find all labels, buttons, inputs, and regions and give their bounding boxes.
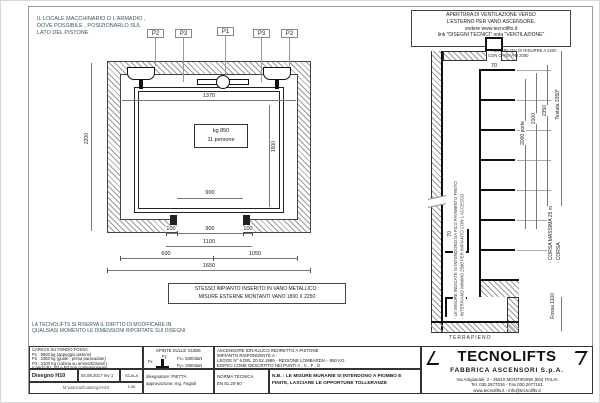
logo-subtitle: FABBRICA ASCENSORI S.p.A. bbox=[422, 367, 592, 375]
ground-floor-slab bbox=[479, 279, 519, 297]
load-point-p2-left: P2 bbox=[147, 29, 164, 38]
top-slab-left bbox=[443, 51, 487, 61]
cell-norma: NORMA TECNICA EN 81.20-50 bbox=[214, 369, 269, 394]
cell-date-rev: 04.09.2017 rev 1 bbox=[78, 369, 120, 382]
norma-text: NORMA TECNICA EN 81.20-50 bbox=[215, 370, 268, 388]
floor-slab bbox=[479, 159, 515, 189]
door-jamb-left bbox=[170, 215, 177, 225]
floor-slab bbox=[479, 189, 515, 219]
disegno-label: Disegno H10 bbox=[30, 370, 77, 382]
dim-2350: 2350 bbox=[542, 105, 548, 116]
leader-p1 bbox=[225, 36, 226, 75]
tick bbox=[107, 268, 108, 273]
dim-900-clear: 900 bbox=[204, 226, 215, 232]
spinte-title: SPINTE SULLE GUIDE bbox=[144, 347, 213, 353]
leader-p2-right bbox=[289, 38, 290, 66]
logo-web: www.tecnolifts.it - info@tecnolifts.it bbox=[422, 388, 592, 394]
cell-carichi: CARICHI SU FONDO FOSSA : P1 : 6900 kg (a… bbox=[29, 346, 143, 369]
tick bbox=[177, 231, 178, 236]
load-point-p2-right: P2 bbox=[281, 29, 298, 38]
dim-corsa: - CORSA MASSIMA 25 m - CORSA bbox=[547, 206, 563, 263]
dim-row4-line bbox=[107, 270, 311, 271]
vent-duct bbox=[485, 37, 503, 51]
dim-1500: 1500 bbox=[271, 141, 277, 152]
drafter-text: disegnatore: PIETTA approvazione: Ing. F… bbox=[144, 370, 213, 388]
load-point-p3-right: P3 bbox=[253, 29, 270, 38]
dim-line-1500 bbox=[269, 105, 270, 207]
dim-100-right: 100 bbox=[242, 226, 253, 232]
dim-1650: 1650 bbox=[202, 263, 216, 269]
leader-p2-left bbox=[155, 38, 156, 66]
door-jamb-right bbox=[243, 215, 250, 225]
terrapieno-label: TERRAPIENO bbox=[449, 335, 492, 341]
cell-scala: SCALA 1:30 bbox=[120, 369, 143, 382]
dim-2100: 2100 bbox=[531, 113, 537, 124]
cell-drafter: disegnatore: PIETTA approvazione: Ing. F… bbox=[143, 369, 214, 394]
dim-line-testata bbox=[561, 51, 562, 229]
floor-slab bbox=[479, 69, 515, 99]
fy-value: Fy= 2000daN bbox=[177, 363, 202, 368]
tick bbox=[310, 268, 311, 273]
dim-2000-porte: 2000 porte bbox=[520, 121, 526, 145]
cell-logo: TECNOLIFTS FABBRICA ASCENSORI S.p.A. Via… bbox=[421, 346, 593, 394]
load-point-p1: P1 bbox=[217, 27, 234, 36]
pulley-housing-left bbox=[127, 67, 155, 80]
date-rev: 04.09.2017 rev 1 bbox=[79, 370, 119, 382]
shaft-wall-section bbox=[431, 51, 443, 333]
dim-100-left: 100 bbox=[165, 226, 176, 232]
leader-p3-right bbox=[261, 38, 262, 82]
cabin-rating-plate: kg 850 11 persone bbox=[194, 124, 248, 148]
drawing-sheet: { "notes": { "machine_room": "IL LOCALE … bbox=[0, 0, 600, 403]
tick bbox=[120, 256, 121, 261]
dim-line-2100 bbox=[536, 73, 537, 229]
dim-1100: 1100 bbox=[202, 239, 216, 245]
floor-slab bbox=[479, 129, 515, 159]
dim-2200: 2200 bbox=[84, 133, 90, 144]
dim-row1-line bbox=[166, 233, 252, 234]
cabin-load: kg 850 bbox=[195, 127, 247, 136]
dim-row3-line bbox=[120, 258, 298, 259]
dim-line-1370 bbox=[122, 100, 296, 101]
tick bbox=[213, 256, 214, 261]
dim-1370: 1370 bbox=[202, 93, 216, 99]
fx-value: Fx= 5300daN bbox=[177, 356, 202, 361]
dim-row2-line bbox=[166, 246, 252, 247]
pulley-housing-right bbox=[263, 67, 291, 80]
section-side-note: - LE MISURE INDICATE SI INTENDONO DA FIL… bbox=[453, 109, 466, 319]
nb-text: N.B. : LE MISURE MURARIE SI INTENDONO A … bbox=[270, 370, 420, 388]
pit-floor bbox=[431, 321, 519, 333]
top-slab-right bbox=[501, 51, 517, 61]
floor-slab bbox=[479, 249, 515, 279]
cell-spinte: SPINTE SULLE GUIDE Fy Fx Fx= 5300daN Fy=… bbox=[143, 346, 214, 369]
dim-line-900-door bbox=[177, 198, 243, 199]
cabin-persons: 11 persone bbox=[195, 136, 247, 145]
logo-name: TECNOLIFTS bbox=[422, 348, 592, 367]
floor-slab bbox=[479, 99, 515, 129]
load-point-p3-left: P3 bbox=[175, 29, 192, 38]
cell-impianto: ASCENSORE IDRAULICO INDIRETTO A PISTONE … bbox=[214, 346, 421, 369]
floor-slab bbox=[479, 219, 515, 249]
tick bbox=[297, 256, 298, 261]
guide-rail-left bbox=[139, 80, 143, 89]
fx-arrow-label: Fx bbox=[148, 359, 153, 364]
dim-line-2000 bbox=[525, 79, 526, 229]
dim-line-fossa bbox=[561, 297, 562, 331]
dim-1050: 1050 bbox=[248, 251, 262, 257]
guide-rail-base-icon bbox=[156, 366, 169, 368]
cell-disegno: Disegno H10 bbox=[29, 369, 78, 382]
impianto-text: ASCENSORE IDRAULICO INDIRETTO A PISTONE … bbox=[215, 347, 420, 369]
guide-rail-right bbox=[275, 80, 279, 89]
reserve-rights-note: LA TECNOLIFTS SI RISERVA IL DIRITTO DI M… bbox=[32, 322, 232, 335]
metal-shaft-note: STESSO IMPIANTO INSERITO IN VANO METALLI… bbox=[168, 283, 346, 304]
leader-p3-left bbox=[183, 38, 184, 82]
dim-testata: Testata 3350* bbox=[555, 89, 561, 120]
cell-nb: N.B. : LE MISURE MURARIE SI INTENDONO A … bbox=[269, 369, 421, 394]
filepath: M:\autocad\catalogo\H10 bbox=[30, 383, 142, 393]
piston-cylinder bbox=[216, 75, 230, 89]
dim-line-2350 bbox=[547, 65, 548, 229]
dim-fossa: Fossa 1100 bbox=[550, 293, 556, 319]
dim-600: 600 bbox=[160, 251, 171, 257]
cell-filepath: M:\autocad\catalogo\H10 bbox=[29, 382, 143, 394]
dim-line-2200 bbox=[91, 63, 92, 231]
dim-900-door: 900 bbox=[204, 190, 215, 196]
